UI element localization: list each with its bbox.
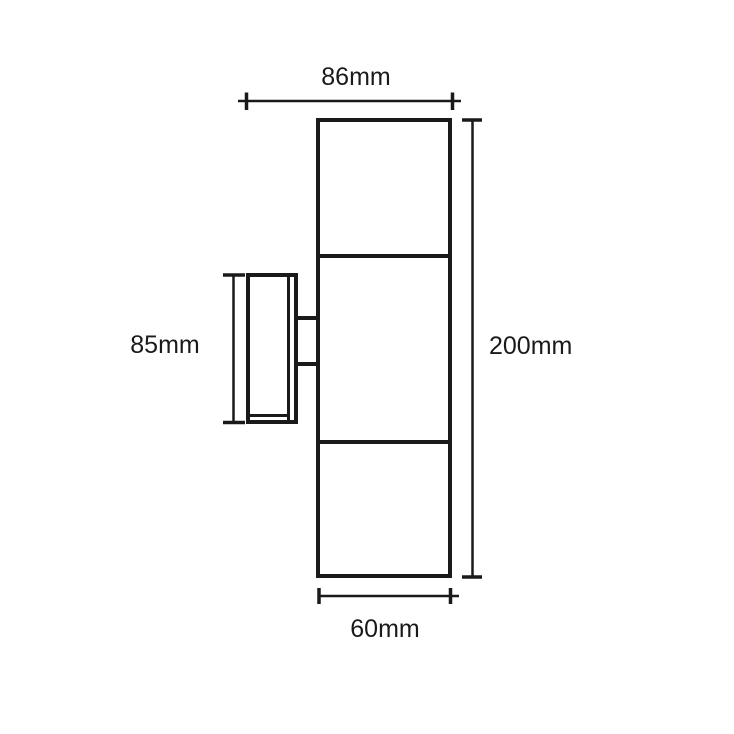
dimension-label-left-bracket-height: 85mm xyxy=(130,331,199,359)
dimension-label-right-height: 200mm xyxy=(489,332,572,360)
dimension-label-top-width: 86mm xyxy=(321,63,390,91)
wall-light-dimension-drawing: 86mm 200mm 85mm 60mm xyxy=(0,0,734,734)
dimension-label-bottom-width: 60mm xyxy=(350,615,419,643)
fixture-body-outline xyxy=(318,120,450,576)
dimension-drawing-canvas: 86mm 200mm 85mm 60mm xyxy=(0,0,734,734)
